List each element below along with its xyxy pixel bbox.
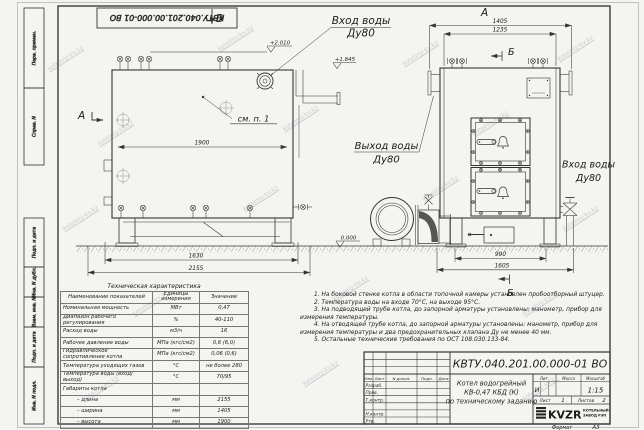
spec-row: – высотамм1900 [61, 417, 249, 428]
right-view [428, 58, 577, 247]
view-label-b-upper: Б [508, 47, 515, 58]
spec-row: Рабочее давление водыМПа (кгс/см2)0,6 (6… [61, 338, 249, 349]
tb-mass-header: Масса [562, 376, 575, 381]
left-view-dimensions [88, 147, 360, 276]
tb-row-nkontr: Н.контр. [366, 412, 385, 418]
stamp-podp-data-2: Подп. и дата [32, 331, 38, 362]
spec-table: Техническая характеристика Наименование … [60, 283, 248, 429]
stamp-inv-podl: Инв. N подл. [32, 380, 38, 410]
spec-row: – длинамм2155 [61, 395, 249, 406]
tb-product-name-3: по техническому заданию [446, 398, 538, 406]
kvzr-logo: KVZR КОТЕЛЬНЫЙ ЗАВОД РЭП [536, 407, 609, 422]
tb-sheets-value: 2 [602, 398, 606, 404]
tb-col-doc: N докум. [392, 376, 410, 381]
spec-row: Температура воды (вход/выход)°С70/95 [61, 372, 249, 384]
ground-line [76, 246, 608, 253]
tb-product-name-1: Котел водогрейный [457, 380, 527, 388]
note-item: 1. На боковой стенке котла в области топ… [300, 292, 610, 300]
dim-1900: 1900 [195, 141, 210, 147]
inlet-pipe-valve [560, 198, 577, 247]
title-block: КВТУ.040.201.00.000-01 ВО Котел водогрей… [364, 352, 610, 430]
tb-col-sign: Подп. [421, 376, 433, 381]
top-stamp-number: КВТУ.040.201.00.000-01 ВО [110, 13, 224, 22]
spec-row: Гидравлическое сопротивление котлаМПа (к… [61, 349, 249, 361]
spec-row: Расход водым3/ч16 [61, 327, 249, 338]
dim-1405: 1405 [493, 19, 508, 25]
tb-logo-text: KVZR [548, 409, 582, 422]
technical-notes: 1. На боковой стенке котла в области топ… [300, 292, 610, 345]
label-inlet-top-2: Ду80 [346, 28, 375, 40]
tb-sheet-value: 1 [561, 398, 565, 404]
dim-1235: 1235 [493, 28, 508, 34]
note-item: 4. На отводящей трубе котла, до запорной… [300, 322, 610, 337]
spec-header-value: Значение [200, 292, 249, 304]
margin-stamps: Перв. примен. Справ. N Подп. и дата Инв.… [24, 8, 44, 424]
tb-product-name-2: КВ-0,47 КБД (К) [464, 389, 519, 397]
tb-sheets-label: Листов [577, 398, 595, 404]
note-item: 3. На подводящей трубе котла, до запорно… [300, 307, 610, 322]
tb-format-value: А3 [591, 425, 600, 430]
label-inlet-top-1: Вход воды [332, 15, 391, 27]
stamp-podp-data-1: Подп. и дата [32, 227, 38, 258]
tb-col-izm: Изм. [364, 376, 373, 381]
dim-990: 990 [495, 252, 506, 258]
label-outlet-1: Выход воды [355, 141, 419, 152]
section-label-a: А [77, 110, 85, 122]
tb-row-utv: Утв. [366, 419, 375, 425]
tb-scale-header: Масштаб [586, 376, 606, 381]
label-inlet-right-1: Вход воды [562, 160, 616, 171]
tb-row-tkontr: Т.контр. [366, 397, 385, 403]
dim-2155: 2155 [189, 266, 204, 272]
tb-row-prov: Пров. [366, 390, 379, 396]
spec-row: Температура уходящих газов°Сне более 280 [61, 361, 249, 372]
ash-drawer [468, 227, 514, 243]
tb-logo-sub-2: ЗАВОД РЭП [583, 414, 606, 418]
tb-scale-value: 1:15 [588, 387, 604, 395]
tb-col-list: Лист [374, 376, 386, 381]
label-inlet-right-2: Ду80 [575, 173, 601, 184]
left-view [104, 46, 356, 247]
spec-table-title: Техническая характеристика [60, 283, 248, 291]
stamp-inv-dubl: Инв. N дубл. [32, 267, 38, 297]
label-outlet-2: Ду80 [372, 155, 399, 166]
drawing-texts: Вход воды Ду80 Выход воды Ду80 Вход воды… [77, 7, 616, 299]
tb-lit-value: И [535, 386, 540, 394]
tb-col-date: Дата [437, 376, 449, 381]
tb-format-label: Формат [552, 425, 573, 430]
spec-row: Габариты котла [61, 384, 249, 395]
lower-furnace-door [471, 168, 530, 217]
note-item: 2. Температура воды на входе 70°С, на вы… [300, 300, 610, 308]
tb-doc-number: КВТУ.040.201.00.000-01 ВО [453, 358, 608, 371]
spec-row: Номинальная мощностьМВт0,47 [61, 303, 249, 314]
view-label-b: В [216, 13, 223, 25]
spec-header-name: Наименование показателей [61, 292, 153, 304]
stamp-vzam-inv: Взам. инв. N [32, 297, 38, 327]
dim-1630: 1630 [189, 254, 204, 260]
note-item: 5. Остальные технические требования по О… [300, 337, 610, 345]
stamp-perv-primen: Перв. примен. [32, 31, 38, 66]
elevation-pipe: +1.845 [335, 57, 356, 63]
spec-header-units: Единицы измерения [153, 292, 200, 304]
tb-logo-sub-1: КОТЕЛЬНЫЙ [583, 408, 609, 413]
drawing-sheet: Перв. примен. Справ. N Подп. и дата Инв.… [0, 0, 644, 430]
view-label-a: А [480, 7, 488, 19]
elevation-ground: 0.000 [341, 236, 357, 242]
right-view-dimensions [430, 26, 574, 274]
upper-furnace-door [471, 118, 530, 166]
label-see-note: см. п. 1 [238, 114, 270, 124]
tb-row-razrab: Разраб. [366, 383, 383, 389]
smoke-exhauster [371, 195, 452, 246]
dim-1605: 1605 [495, 263, 510, 269]
spec-row: Диапазон рабочего регулирования%40-110 [61, 315, 249, 327]
elevation-top: +2.010 [270, 41, 291, 47]
spec-row: – ширинамм1405 [61, 406, 249, 417]
stamp-sprav-n: Справ. N [32, 115, 38, 137]
tb-sheet-label: Лист [538, 398, 551, 404]
tb-lit-header: Лит. [539, 376, 549, 381]
nameplate [527, 78, 550, 98]
